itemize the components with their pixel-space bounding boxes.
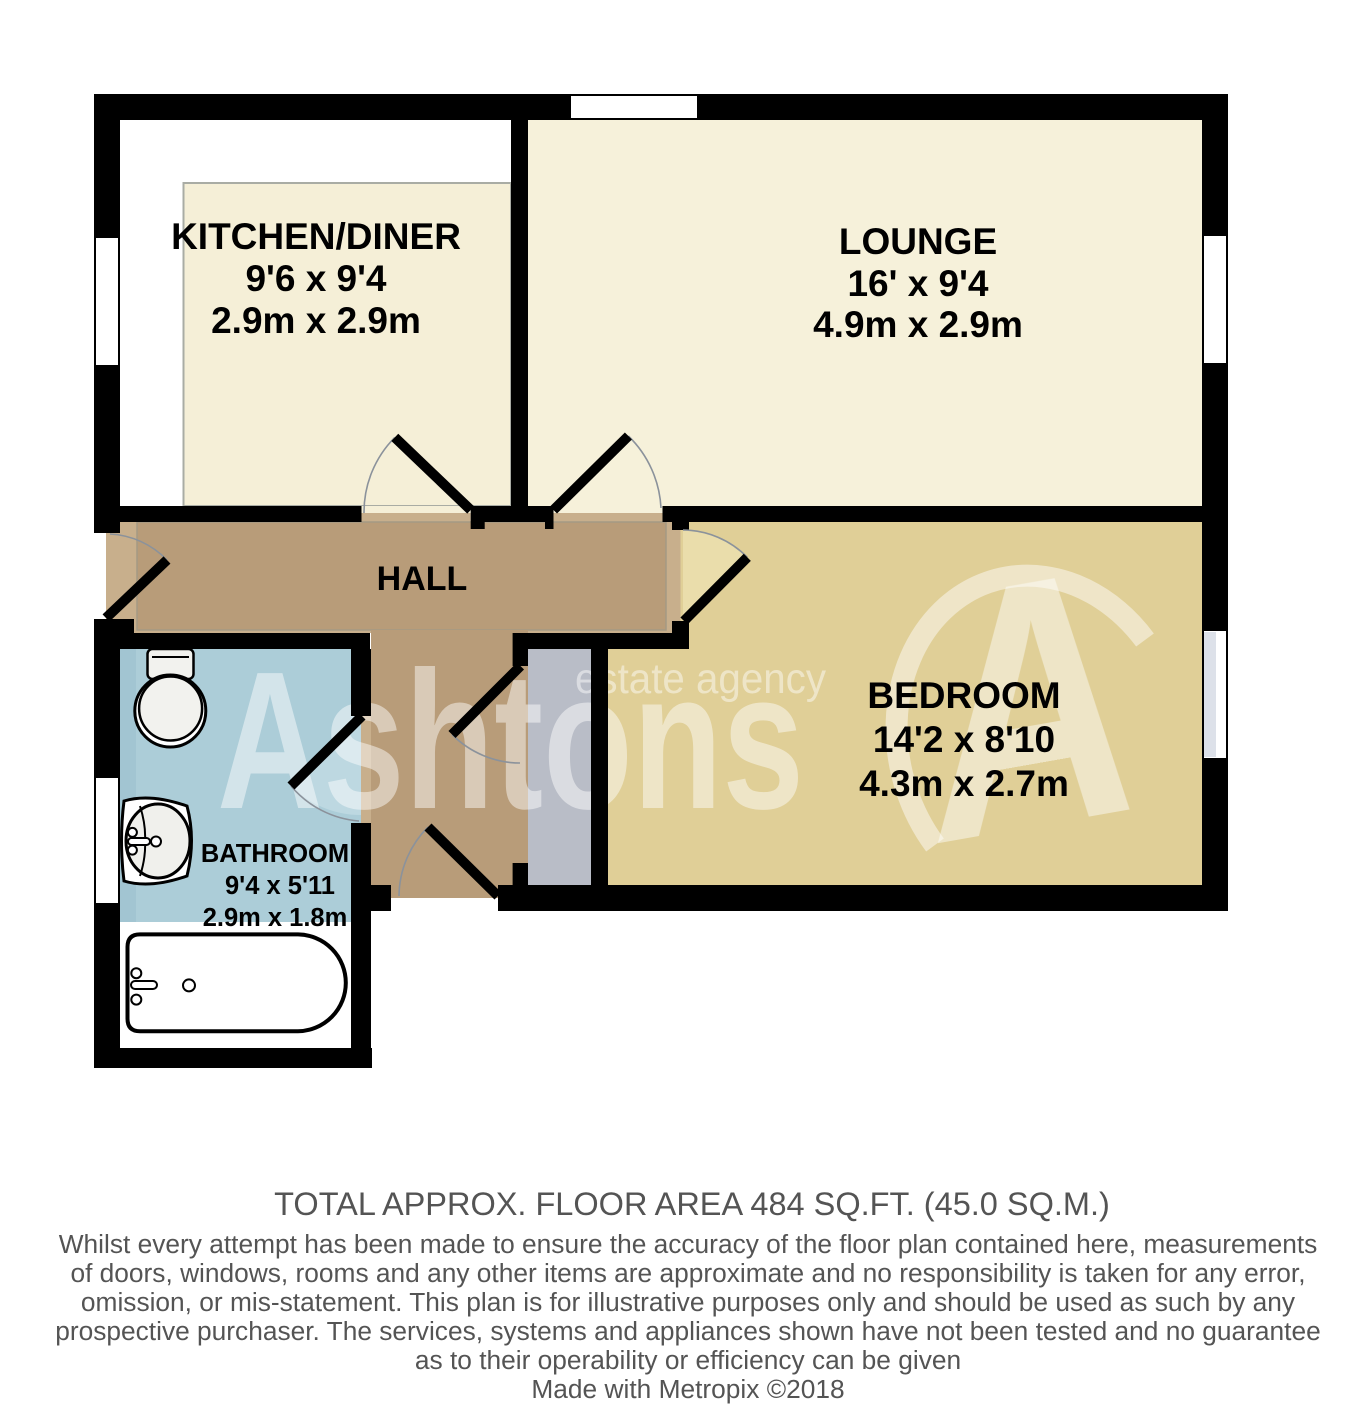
svg-text:BATHROOM: BATHROOM [201, 840, 349, 868]
svg-text:TOTAL APPROX. FLOOR AREA 484 S: TOTAL APPROX. FLOOR AREA 484 SQ.FT. (45.… [274, 1186, 1110, 1222]
svg-text:estate agency: estate agency [575, 655, 826, 703]
svg-text:2.9m x 1.8m: 2.9m x 1.8m [203, 904, 348, 932]
svg-text:omission, or mis-statement. Th: omission, or mis-statement. This plan is… [81, 1287, 1296, 1317]
svg-text:4.9m x 2.9m: 4.9m x 2.9m [813, 304, 1023, 345]
svg-text:BEDROOM: BEDROOM [867, 675, 1060, 716]
svg-text:9'4 x 5'11: 9'4 x 5'11 [225, 872, 335, 900]
svg-text:2.9m x 2.9m: 2.9m x 2.9m [211, 300, 421, 341]
svg-text:HALL: HALL [377, 560, 468, 598]
svg-text:9'6 x 9'4: 9'6 x 9'4 [245, 258, 386, 299]
svg-text:Whilst every attempt has been: Whilst every attempt has been made to en… [59, 1229, 1318, 1259]
svg-text:of doors, windows, rooms and a: of doors, windows, rooms and any other i… [70, 1258, 1305, 1288]
svg-text:14'2 x 8'10: 14'2 x 8'10 [873, 719, 1055, 760]
svg-text:as to their operability or eff: as to their operability or efficiency ca… [415, 1345, 961, 1375]
svg-text:LOUNGE: LOUNGE [839, 221, 997, 262]
svg-text:prospective purchaser. The ser: prospective purchaser. The services, sys… [55, 1316, 1320, 1346]
svg-text:KITCHEN/DINER: KITCHEN/DINER [171, 216, 461, 257]
svg-text:Made with Metropix ©2018: Made with Metropix ©2018 [531, 1374, 844, 1404]
svg-text:4.3m x 2.7m: 4.3m x 2.7m [859, 763, 1069, 804]
svg-text:16' x 9'4: 16' x 9'4 [847, 263, 988, 304]
